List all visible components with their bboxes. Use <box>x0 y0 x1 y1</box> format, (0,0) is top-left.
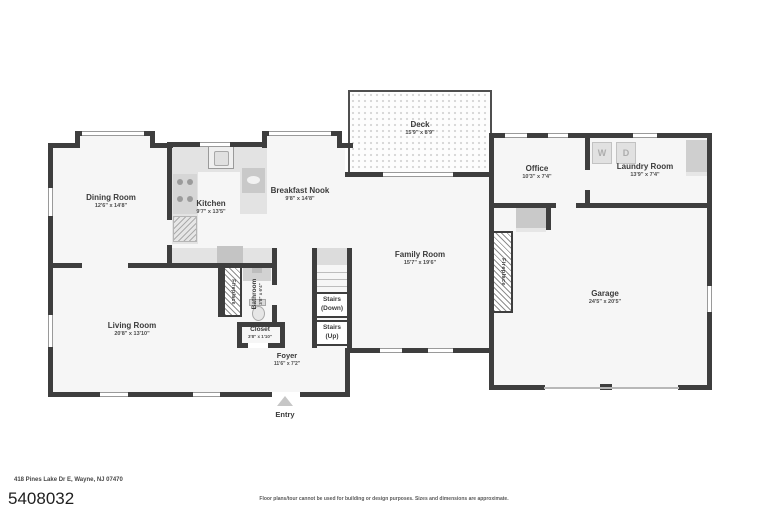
room-label-bathroom: Bathroom 3'8" x 6'4" <box>227 264 287 324</box>
window <box>548 133 568 138</box>
stairs-down-label: Stairs (Down) <box>317 296 347 314</box>
stove-burner <box>187 179 193 185</box>
floor-plan: Fireplace Fireplace Stairs (Down) Stairs… <box>0 0 768 512</box>
stair-tread <box>317 272 347 273</box>
window <box>48 315 53 347</box>
window <box>82 131 144 136</box>
window <box>428 348 453 353</box>
room-label-breakfast: Breakfast Nook 9'8" x 14'8" <box>255 186 345 204</box>
stair-tread <box>317 279 347 280</box>
window <box>380 348 402 353</box>
window <box>48 188 53 216</box>
room-label-kitchen: Kitchen 9'7" x 13'5" <box>171 199 251 217</box>
stair-top-cabinet <box>315 248 349 265</box>
room-label-garage: Garage 24'5" x 20'5" <box>555 289 655 307</box>
wall <box>48 143 53 397</box>
window <box>707 286 712 312</box>
wall-oven-handle <box>247 176 260 184</box>
dryer: D <box>616 142 636 164</box>
dishwasher <box>173 216 197 242</box>
wall <box>489 385 545 390</box>
room-label-dining: Dining Room 12'6" x 14'8" <box>61 193 161 211</box>
room-label-office: Office 10'3" x 7'4" <box>497 164 577 182</box>
window <box>200 142 230 147</box>
wall <box>345 348 350 397</box>
wall <box>546 205 551 230</box>
entry-arrow-icon <box>277 396 293 406</box>
kitchen-sink-basin <box>214 151 229 166</box>
window <box>633 133 657 138</box>
room-label-family: Family Room 15'7" x 19'6" <box>370 250 470 268</box>
wall <box>707 133 712 390</box>
wall <box>337 143 353 148</box>
wall <box>678 385 712 390</box>
window <box>269 131 331 136</box>
stairs-up-label: Stairs (Up) <box>317 324 347 342</box>
garage-door-line <box>544 387 679 389</box>
garage-cabinet-edge <box>516 228 546 232</box>
room-label-closet: Closet 3'8" x 1'10" <box>236 326 284 340</box>
wall <box>576 203 712 208</box>
disclaimer: Floor plans/tour cannot be used for buil… <box>0 496 768 502</box>
window <box>100 392 128 397</box>
stairs-down: Stairs (Down) <box>315 292 349 318</box>
room-label-deck: Deck 15'9" x 8'9" <box>380 120 460 138</box>
room-label-foyer: Foyer 11'6" x 7'2" <box>252 351 322 367</box>
wall <box>48 263 82 268</box>
window <box>383 172 453 177</box>
wall <box>350 348 493 353</box>
stairs-up: Stairs (Up) <box>315 320 349 346</box>
window <box>505 133 527 138</box>
stair-tread <box>317 286 347 287</box>
stove-burner <box>177 179 183 185</box>
room-label-living: Living Room 20'8" x 13'10" <box>82 321 182 339</box>
entry-label: Entry <box>260 410 310 420</box>
washer: W <box>592 142 612 164</box>
door-opening-closet <box>248 343 268 348</box>
room-label-laundry: Laundry Room 13'9" x 7'4" <box>595 162 695 180</box>
fireplace-label: Fireplace <box>500 258 506 286</box>
wall <box>585 138 590 170</box>
garage-cabinet <box>516 208 546 228</box>
window <box>193 392 220 397</box>
address: 418 Pines Lake Dr E, Wayne, NJ 07470 <box>14 477 123 483</box>
wall <box>489 348 494 390</box>
